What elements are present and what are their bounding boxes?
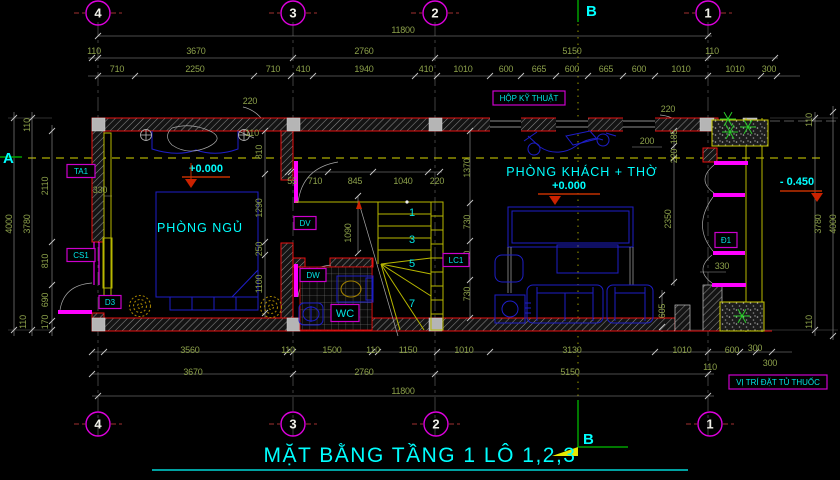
dim-label: 710 xyxy=(266,64,281,74)
dim-label: 1150 xyxy=(399,345,418,355)
dim-label: 1010 xyxy=(453,64,472,74)
tag-label: D3 xyxy=(105,298,116,307)
dimension-ticks xyxy=(11,33,836,399)
dim-label: 1940 xyxy=(354,64,373,74)
dim-label: 185 xyxy=(669,130,679,145)
dim-label: 2350 xyxy=(663,209,673,228)
dim-label: 110 xyxy=(703,362,717,372)
column xyxy=(675,305,690,331)
stair-arrow xyxy=(356,200,362,209)
dim-label: 3560 xyxy=(180,345,199,355)
dim-label: 300 xyxy=(748,343,763,353)
grid-bubble-label: 2 xyxy=(432,417,439,432)
section-b-bottom-label: B xyxy=(583,431,594,448)
dim-label: 220 xyxy=(243,96,258,106)
dim-label: 690 xyxy=(40,293,50,308)
door-d3 xyxy=(58,283,92,314)
bed xyxy=(156,192,258,297)
entry-column xyxy=(703,285,722,331)
grid-bubble-label: 3 xyxy=(289,6,296,21)
dim-label: 250 xyxy=(254,242,264,257)
dim-label: 11800 xyxy=(391,25,415,35)
tag-label: LC1 xyxy=(449,256,464,265)
dim-label: 1500 xyxy=(322,345,341,355)
dimension-lines xyxy=(8,36,838,396)
dimension-labels: 1180011036702760515011071022507104101940… xyxy=(4,25,838,396)
tag-label: VỊ TRÍ ĐẶT TỦ THUỐC xyxy=(736,377,820,387)
pouf-rug xyxy=(130,296,151,317)
stair-number: 5 xyxy=(409,258,415,270)
dim-label: 810 xyxy=(254,145,264,160)
dim-label: 410 xyxy=(296,64,311,74)
dim-label: 605 xyxy=(657,304,667,319)
dim-label: 5150 xyxy=(562,46,581,56)
motorbike xyxy=(524,131,616,155)
dim-label: 2110 xyxy=(40,177,50,196)
dim-label: 4000 xyxy=(828,214,838,233)
stringer-rungs xyxy=(431,216,443,314)
coffee-table xyxy=(557,245,618,273)
dim-label: 600 xyxy=(725,345,740,355)
pouf-rug xyxy=(138,304,143,309)
drawing-title: MẶT BẰNG TẦNG 1 LÔ 1,2,3 xyxy=(264,443,577,467)
grid-bubble-label: 2 xyxy=(431,6,438,21)
dim-label: 200 xyxy=(640,136,655,146)
armchair xyxy=(607,285,653,323)
dim-label: 4000 xyxy=(4,214,14,233)
dim-label: 110 xyxy=(281,345,295,355)
stair-number: 3 xyxy=(409,234,415,246)
pouf-rug xyxy=(269,305,274,310)
altar-table xyxy=(508,207,633,247)
dim-label: 110 xyxy=(245,128,259,138)
back-wall xyxy=(92,318,675,331)
dim-label: 600 xyxy=(565,64,580,74)
entry-wall-stub xyxy=(703,148,717,162)
stair-number: 7 xyxy=(409,298,415,310)
window-cs1 xyxy=(94,238,112,288)
dim-label: 110 xyxy=(804,315,814,329)
plant-icon xyxy=(728,112,732,119)
side-table xyxy=(495,255,523,282)
left-wall-stub xyxy=(92,313,104,318)
stair-numbers: 1357 xyxy=(409,207,415,310)
dim-label: 810 xyxy=(40,254,50,269)
dim-label: 845 xyxy=(348,176,363,186)
dim-label: 1010 xyxy=(725,64,744,74)
floor-plan-drawing: +0.000 +0.000 - 0.450 PHÒNG NGỦ PHÒNG KH… xyxy=(0,0,840,480)
dim-label: 1040 xyxy=(393,176,412,186)
dim-label: 600 xyxy=(499,64,514,74)
dim-label: 1010 xyxy=(671,64,690,74)
pouf-rugs xyxy=(130,296,282,318)
grid-bubble-label: 4 xyxy=(94,417,102,432)
stair-number: 1 xyxy=(409,207,415,219)
dim-label: 110 xyxy=(366,345,380,355)
dim-label: 330 xyxy=(715,261,730,271)
room-label-living: PHÒNG KHÁCH + THỜ xyxy=(506,164,657,179)
tag-label: CS1 xyxy=(73,251,89,260)
elevation-markers: +0.000 +0.000 - 0.450 xyxy=(182,163,823,205)
pouf-rug xyxy=(134,300,147,313)
winder-line xyxy=(381,258,431,264)
dim-label: 3130 xyxy=(562,345,581,355)
dim-label: 1010 xyxy=(454,345,473,355)
dim-label: 710 xyxy=(308,176,323,186)
dim-label: 1100 xyxy=(254,275,264,294)
grid-bubble-label: 1 xyxy=(706,417,713,432)
cad-canvas: +0.000 +0.000 - 0.450 PHÒNG NGỦ PHÒNG KH… xyxy=(0,0,840,480)
tag-label: DV xyxy=(299,219,311,228)
dim-label: 710 xyxy=(110,64,125,74)
elevation-label: - 0.450 xyxy=(780,176,814,188)
elevation-label: +0.000 xyxy=(552,180,586,192)
dim-label: 2250 xyxy=(185,64,204,74)
front-wall-openings xyxy=(490,117,655,132)
grid-bubble-label: 1 xyxy=(704,6,711,21)
section-b-top-label: B xyxy=(586,3,597,20)
dim-label: 2760 xyxy=(354,367,373,377)
left-wall-upper xyxy=(92,118,104,242)
tag-label: DW xyxy=(306,271,320,280)
dim-label: 110 xyxy=(705,46,719,56)
tag-label: TA1 xyxy=(74,167,89,176)
dim-label: 1010 xyxy=(672,345,691,355)
dim-label: 220 xyxy=(430,176,445,186)
dim-label: 3780 xyxy=(22,214,32,233)
sofa xyxy=(527,285,603,323)
dim-label: 300 xyxy=(762,64,777,74)
dim-label: 300 xyxy=(763,358,778,368)
dim-label: 2760 xyxy=(354,46,373,56)
headboard xyxy=(152,131,238,153)
plant-icon xyxy=(724,112,728,119)
living-room-furniture xyxy=(495,131,653,323)
dim-label: 330 xyxy=(93,185,108,195)
dim-label: 1290 xyxy=(254,198,264,217)
dim-label: 730 xyxy=(462,215,472,230)
dim-label: 110 xyxy=(804,113,814,127)
dim-label: 55 xyxy=(287,176,297,186)
dim-label: 220 xyxy=(661,104,676,114)
dim-label: 665 xyxy=(532,64,547,74)
grid-bubble-label: 3 xyxy=(289,417,296,432)
dim-label: 3780 xyxy=(813,214,823,233)
dim-label: 220 xyxy=(669,149,679,164)
room-label-bedroom: PHÒNG NGỦ xyxy=(157,220,243,235)
dim-label: 110 xyxy=(18,315,28,329)
tag-label: HỘP KỸ THUẬT xyxy=(500,94,559,103)
dim-label: 11800 xyxy=(391,386,415,396)
bedroom-partition-lower xyxy=(281,243,293,318)
dim-label: 1090 xyxy=(343,223,353,242)
dim-label: 3670 xyxy=(183,367,202,377)
dim-label: 730 xyxy=(462,287,472,302)
tag-label: Đ1 xyxy=(721,236,732,245)
stair-stringer xyxy=(431,202,443,330)
dim-label: 410 xyxy=(419,64,434,74)
section-a-label: A xyxy=(3,150,14,167)
dim-label: 5150 xyxy=(560,367,579,377)
tag-label: WC xyxy=(336,308,354,320)
planter-top xyxy=(712,120,768,146)
dim-label: 3670 xyxy=(186,46,205,56)
dim-label: 110 xyxy=(87,46,101,56)
elevation-label: +0.000 xyxy=(189,163,223,175)
wc-wall-right xyxy=(330,258,373,267)
dim-label: 110 xyxy=(22,118,32,132)
dim-label: 600 xyxy=(632,64,647,74)
dim-label: 1370 xyxy=(462,158,472,177)
grid-bubble-label: 4 xyxy=(94,6,102,21)
dim-label: 170 xyxy=(40,315,50,330)
dim-label: 665 xyxy=(599,64,614,74)
